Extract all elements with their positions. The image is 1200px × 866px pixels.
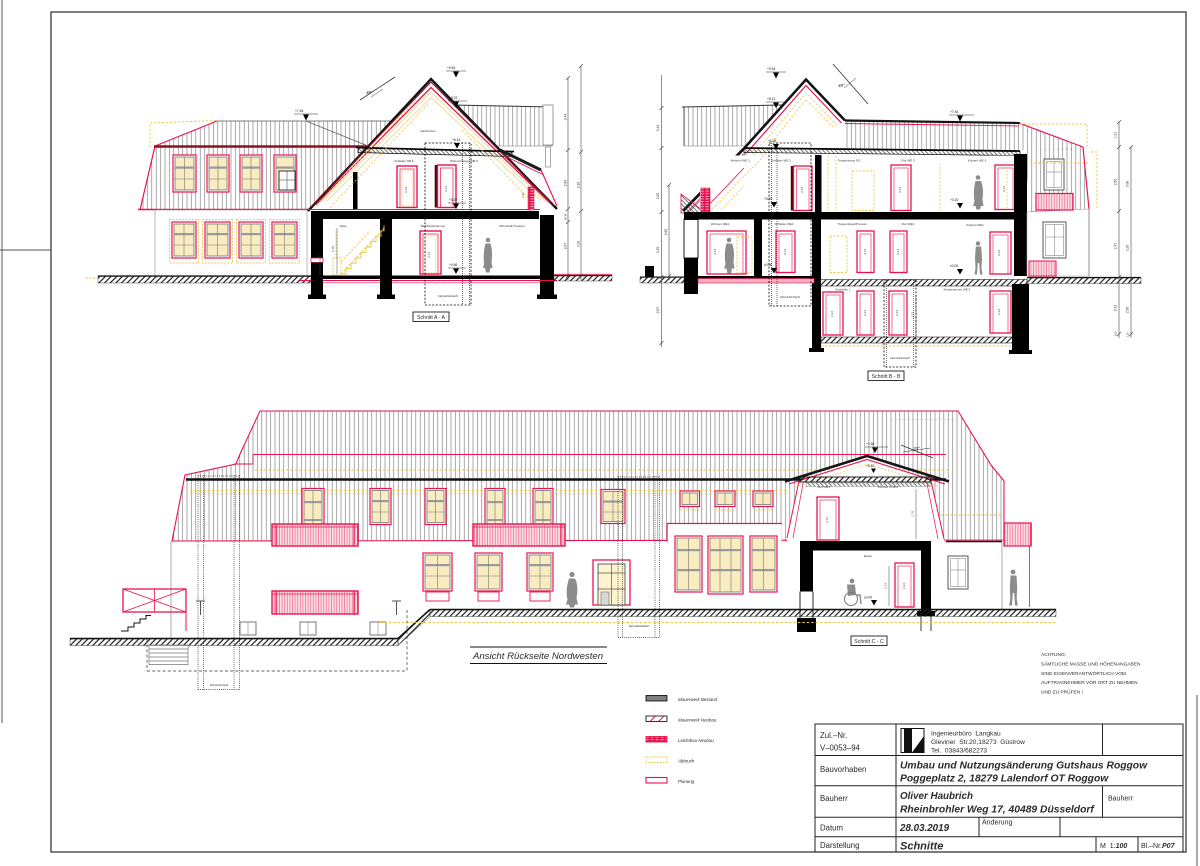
svg-text:+3.22: +3.22 [449,198,458,202]
svg-text:2.13: 2.13 [427,252,431,259]
svg-text:Leichtbau Neubau: Leichtbau Neubau [678,738,714,743]
svg-text:2.13: 2.13 [898,187,902,194]
svg-text:Umbau und Nutzungsänderung Gut: Umbau und Nutzungsänderung Gutshaus Rogg… [900,761,1148,772]
svg-text:2.13: 2.13 [896,249,900,256]
svg-text:Küchen WE 3: Küchen WE 3 [968,159,987,163]
svg-text:±0.00: ±0.00 [864,596,872,600]
svg-text:3.20: 3.20 [1126,245,1130,252]
svg-text:2.13: 2.13 [800,187,804,194]
svg-text:2.67: 2.67 [656,307,660,314]
svg-text:2.13: 2.13 [884,583,888,590]
svg-text:2.60: 2.60 [1114,179,1118,186]
svg-text:1.74: 1.74 [911,511,915,517]
svg-text:Mauerwerk Neubau: Mauerwerk Neubau [678,718,717,723]
svg-text:+9.54: +9.54 [767,67,776,71]
svg-text:2.90: 2.90 [656,193,660,200]
svg-text:+6.35: +6.35 [768,139,777,143]
svg-text:2.13: 2.13 [902,583,906,590]
svg-text:3.06: 3.06 [1126,181,1130,188]
svg-text:2.13: 2.13 [404,187,408,194]
svg-text:Schlafen NB 6: Schlafen NB 6 [394,159,414,163]
svg-text:Schnitt A - A: Schnitt A - A [417,315,446,321]
svg-text:20°: 20° [912,446,920,451]
svg-text:Schnitte: Schnitte [900,841,943,853]
svg-text:Treppenhaus DG: Treppenhaus DG [838,159,862,163]
svg-text:±0.00: ±0.00 [950,264,958,268]
svg-text:+0.66: +0.66 [449,263,458,267]
svg-text:Küchen WE1: Küchen WE1 [966,223,984,227]
svg-text:Datum: Datum [820,824,843,833]
svg-text:Gleviner Str.20,18273 Güstro: Gleviner Str.20,18273 Güstrow [931,739,1025,746]
svg-text:Fahrstuhlschacht: Fahrstuhlschacht [890,356,910,360]
svg-text:3.44: 3.44 [656,125,660,132]
svg-text:Bauvorhaben: Bauvorhaben [820,765,866,774]
svg-text:Abbruch: Abbruch [677,759,695,764]
svg-text:Schlafen WE 3: Schlafen WE 3 [771,159,791,163]
svg-text:2.60: 2.60 [664,229,668,236]
svg-text:Oliver Haubrich: Oliver Haubrich [900,791,973,802]
svg-text:Dachboden: Dachboden [420,129,436,133]
svg-text:V–0053–94: V–0053–94 [820,744,861,753]
svg-text:Kinderflur 1: Kinderflur 1 [835,288,851,292]
svg-text:2.42: 2.42 [1114,305,1118,312]
svg-text:2.13: 2.13 [830,311,834,318]
svg-text:Fahrstuhlschacht: Fahrstuhlschacht [210,684,229,687]
svg-text:Flur WE1: Flur WE1 [902,222,915,226]
svg-text:Ingenieurbüro Langkau: Ingenieurbüro Langkau [931,731,1001,738]
svg-text:+6.40: +6.40 [866,464,875,468]
svg-text:39,14: 39,14 [564,213,568,220]
svg-text:Zul.–Nr.: Zul.–Nr. [820,731,847,740]
svg-text:Wirtschaft/Trockner: Wirtschaft/Trockner [499,224,525,228]
svg-text:+7.46: +7.46 [950,110,959,114]
svg-text:Schnitt B - B: Schnitt B - B [872,374,901,380]
svg-text:Fahrstuhlschacht: Fahrstuhlschacht [438,294,458,298]
svg-text:+3.20: +3.20 [950,198,959,202]
svg-text:+8.21: +8.21 [767,97,776,101]
svg-text:2.13: 2.13 [444,186,448,193]
svg-text:3.20: 3.20 [577,241,581,248]
svg-text:Kinderzimmer WE 5: Kinderzimmer WE 5 [944,288,971,292]
svg-text:1,05: 1,05 [1114,331,1118,337]
svg-text:Zimmer 3 NB 6: Zimmer 3 NB 6 [878,485,899,489]
svg-text:Bad/Kinderzimmer: Bad/Kinderzimmer [421,224,446,228]
svg-text:SÄMTLICHE MASSE UND HÖHENANGAB: SÄMTLICHE MASSE UND HÖHENANGABEN [1041,660,1141,667]
svg-text:Änderung: Änderung [982,819,1012,827]
svg-text:2.13: 2.13 [713,249,717,256]
svg-text:Wohnen/Essen NB 6: Wohnen/Essen NB 6 [450,159,478,163]
svg-text:2.60: 2.60 [564,180,568,187]
svg-text:Poggeplatz 2, 18279 Lalendorf: Poggeplatz 2, 18279 Lalendorf OT Roggow [900,774,1109,785]
svg-text:Schnitt C - C: Schnitt C - C [854,639,884,645]
svg-text:+7.46: +7.46 [295,109,304,113]
svg-text:ACHTUNG:: ACHTUNG: [1041,652,1066,658]
svg-text:2.47: 2.47 [1114,243,1118,250]
svg-text:2.13: 2.13 [997,309,1001,316]
svg-text:Essen: Essen [864,554,873,558]
svg-text:Mauerwerk Bestand: Mauerwerk Bestand [678,697,718,702]
svg-text:1.01: 1.01 [521,192,525,198]
svg-text:1,15: 1,15 [1126,332,1130,338]
svg-text:Bauherr: Bauherr [1108,796,1134,803]
svg-text:Treppenhaus/Prozess: Treppenhaus/Prozess [837,222,867,226]
svg-text:Planung: Planung [678,779,695,784]
svg-text:2.13: 2.13 [863,310,867,317]
svg-text:2.13: 2.13 [1002,186,1006,193]
svg-text:SIND EIGENVERANTWORTLICH VOM: SIND EIGENVERANTWORTLICH VOM [1041,671,1126,677]
svg-text:3.20: 3.20 [656,247,660,254]
svg-text:Bauherr: Bauherr [820,794,848,803]
svg-text:+9.54: +9.54 [447,66,456,70]
svg-text:+6.15: +6.15 [452,138,461,142]
svg-text:1.51: 1.51 [911,312,915,318]
svg-text:2.90: 2.90 [1126,307,1130,314]
svg-text:M 1:100: M 1:100 [1100,843,1127,850]
svg-text:2.67: 2.67 [564,243,568,250]
svg-text:28.03.2019: 28.03.2019 [899,823,950,834]
svg-text:2.13: 2.13 [863,249,867,256]
svg-text:Wohnen WE 3: Wohnen WE 3 [730,159,750,163]
svg-text:+7.68: +7.68 [866,442,875,446]
svg-text:2.90: 2.90 [577,182,581,189]
svg-text:UND ZU PRÜFEN !: UND ZU PRÜFEN ! [1041,689,1083,696]
svg-text:Diele: Diele [340,224,347,228]
svg-text:Ansicht Rückseite Nordwesten: Ansicht Rückseite Nordwesten [472,651,603,662]
svg-text:2.13: 2.13 [997,250,1001,257]
svg-text:3.44: 3.44 [564,114,568,121]
svg-text:Flur NB 6: Flur NB 6 [818,485,831,489]
svg-text:Bl.–Nr.P07: Bl.–Nr.P07 [1141,843,1176,850]
svg-text:48°: 48° [838,83,845,88]
svg-text:2.13: 2.13 [895,310,899,317]
svg-text:Fahrradabstellplatz: Fahrradabstellplatz [629,625,650,628]
svg-text:Fahrstuhlschacht: Fahrstuhlschacht [780,295,800,299]
svg-text:2.13: 2.13 [825,517,829,524]
svg-text:2.76: 2.76 [331,246,335,253]
svg-text:Wohnen WE1: Wohnen WE1 [711,222,730,226]
svg-text:1.21: 1.21 [1114,132,1118,139]
svg-text:2.13: 2.13 [783,249,787,256]
svg-text:48°: 48° [366,90,373,95]
svg-text:AUFTRAGNEHMER VOR ORT ZU NEHME: AUFTRAGNEHMER VOR ORT ZU NEHMEN [1041,680,1138,686]
svg-text:+8.22: +8.22 [449,96,458,100]
svg-text:Darstellung: Darstellung [820,841,859,850]
svg-text:Tel. 03843/682273: Tel. 03843/682273 [931,748,987,755]
svg-text:Flur WE 3: Flur WE 3 [901,159,915,163]
svg-text:Rheinbrohler Weg 17, 40489 Düs: Rheinbrohler Weg 17, 40489 Düsseldorf [900,805,1095,816]
